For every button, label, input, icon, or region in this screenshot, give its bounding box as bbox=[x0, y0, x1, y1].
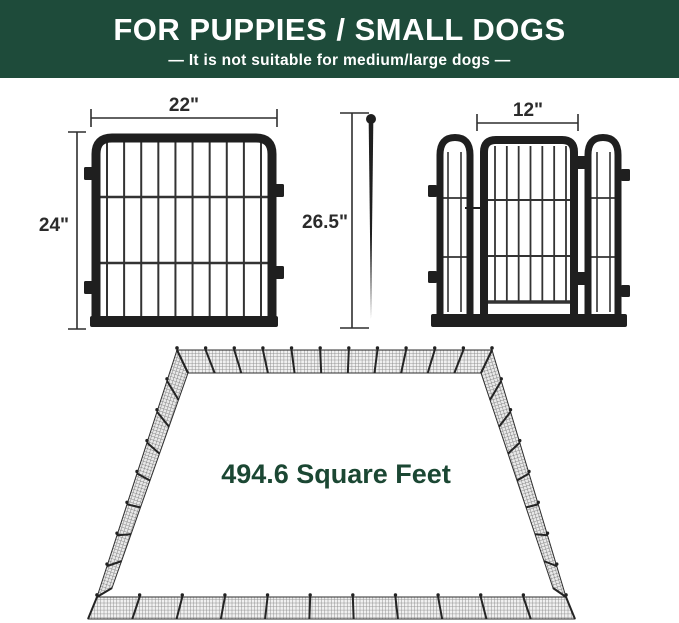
pen-front-wall bbox=[88, 597, 575, 619]
overall-height-label: 26.5" bbox=[302, 212, 348, 233]
gate-bottom-rail bbox=[431, 314, 627, 327]
door-width-dimension: 12" bbox=[477, 100, 578, 131]
diagram-canvas: 22" 24" 26.5" 12" bbox=[0, 0, 679, 623]
pen-right-wall bbox=[481, 350, 566, 597]
connector-tab bbox=[84, 281, 93, 294]
stake-spike bbox=[369, 123, 374, 319]
fence-panel-bars bbox=[107, 140, 261, 316]
gate-door-frame bbox=[484, 140, 574, 316]
connector-tab bbox=[621, 169, 630, 181]
connector-tab bbox=[428, 271, 437, 283]
gate-side-panel-bars bbox=[448, 152, 461, 312]
panel-width-label: 22" bbox=[169, 95, 199, 116]
fence-panel-frame bbox=[96, 138, 272, 324]
door-width-label: 12" bbox=[513, 100, 543, 121]
connector-tab bbox=[275, 184, 284, 197]
pen-left-wall bbox=[97, 350, 188, 597]
overall-height-dimension: 26.5" bbox=[302, 113, 369, 328]
door-hinge bbox=[573, 272, 586, 285]
connector-tab bbox=[621, 285, 630, 297]
gate-door-bars bbox=[495, 146, 566, 302]
ground-stake-illustration bbox=[366, 114, 376, 319]
pen-area-label: 494.6 Square Feet bbox=[221, 459, 451, 489]
panel-height-label: 24" bbox=[39, 215, 69, 236]
gate-side-panel-frame bbox=[440, 138, 470, 317]
panel-width-dimension: 22" bbox=[91, 95, 277, 127]
panel-height-dimension: 24" bbox=[39, 132, 86, 329]
door-hinge bbox=[573, 156, 586, 169]
pen-back-wall bbox=[177, 350, 492, 373]
fence-panel-bottom-rail bbox=[90, 316, 278, 327]
connector-tab bbox=[275, 266, 284, 279]
gate-panel-illustration bbox=[428, 138, 630, 328]
fence-panel-illustration bbox=[84, 138, 284, 327]
gate-side-panel-frame bbox=[588, 138, 618, 317]
gate-side-panel-bars bbox=[597, 152, 610, 312]
connector-tab bbox=[428, 185, 437, 197]
stake-ball-head bbox=[366, 114, 376, 124]
connector-tab bbox=[84, 167, 93, 180]
